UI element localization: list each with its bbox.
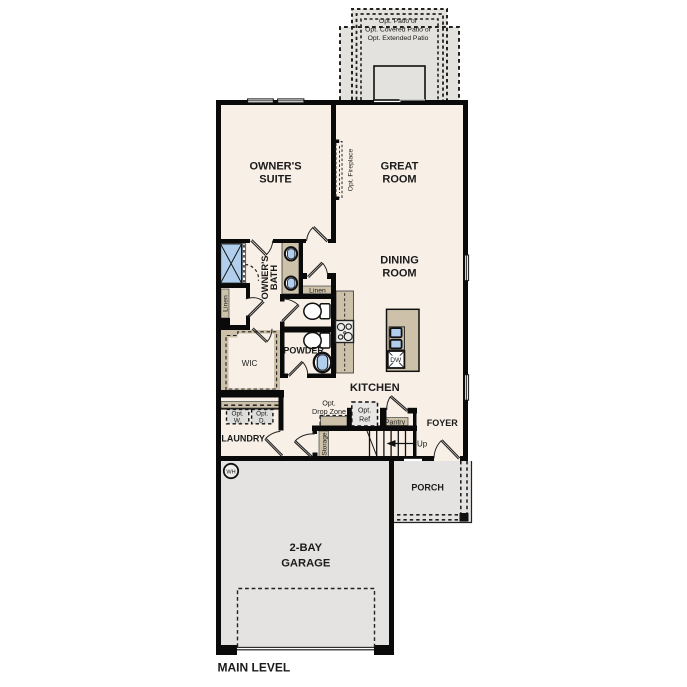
- svg-text:Opt.: Opt.: [256, 411, 268, 418]
- svg-text:Opt. Fireplace: Opt. Fireplace: [348, 148, 355, 191]
- svg-text:Opt. Covered Patio or: Opt. Covered Patio or: [365, 27, 431, 34]
- svg-text:Up: Up: [417, 439, 428, 448]
- svg-text:DINING: DINING: [380, 255, 419, 267]
- svg-text:FOYER: FOYER: [427, 418, 459, 428]
- svg-text:BATH: BATH: [269, 265, 279, 290]
- svg-text:Linen: Linen: [223, 295, 230, 312]
- svg-text:Pantry: Pantry: [385, 419, 406, 426]
- svg-text:KITCHEN: KITCHEN: [350, 382, 400, 394]
- svg-text:LAUNDRY: LAUNDRY: [221, 433, 265, 443]
- svg-text:W.: W.: [234, 418, 242, 425]
- svg-text:SUITE: SUITE: [259, 174, 291, 186]
- svg-text:DW: DW: [390, 357, 402, 364]
- svg-text:MAIN LEVEL: MAIN LEVEL: [218, 661, 291, 675]
- svg-text:Ref: Ref: [359, 417, 370, 424]
- svg-text:GREAT: GREAT: [381, 160, 419, 172]
- svg-text:Opt.: Opt.: [232, 411, 244, 418]
- svg-text:OWNER'S: OWNER'S: [249, 160, 301, 172]
- svg-text:Drop Zone: Drop Zone: [312, 407, 346, 416]
- svg-text:Opt. Extended Patio: Opt. Extended Patio: [368, 35, 429, 42]
- svg-text:D.: D.: [259, 418, 266, 425]
- svg-text:PORCH: PORCH: [411, 482, 444, 492]
- svg-text:WIC: WIC: [242, 359, 258, 368]
- svg-text:Storage: Storage: [321, 432, 328, 455]
- svg-text:Opt. Patio or: Opt. Patio or: [379, 18, 418, 25]
- svg-text:Opt.: Opt.: [358, 408, 371, 415]
- svg-text:GARAGE: GARAGE: [281, 558, 331, 570]
- svg-text:ROOM: ROOM: [382, 174, 416, 186]
- svg-text:Linen: Linen: [309, 287, 326, 294]
- svg-text:WH: WH: [226, 469, 235, 475]
- svg-text:ROOM: ROOM: [382, 268, 416, 280]
- svg-text:2-BAY: 2-BAY: [290, 542, 323, 554]
- svg-text:POWDER: POWDER: [283, 345, 324, 355]
